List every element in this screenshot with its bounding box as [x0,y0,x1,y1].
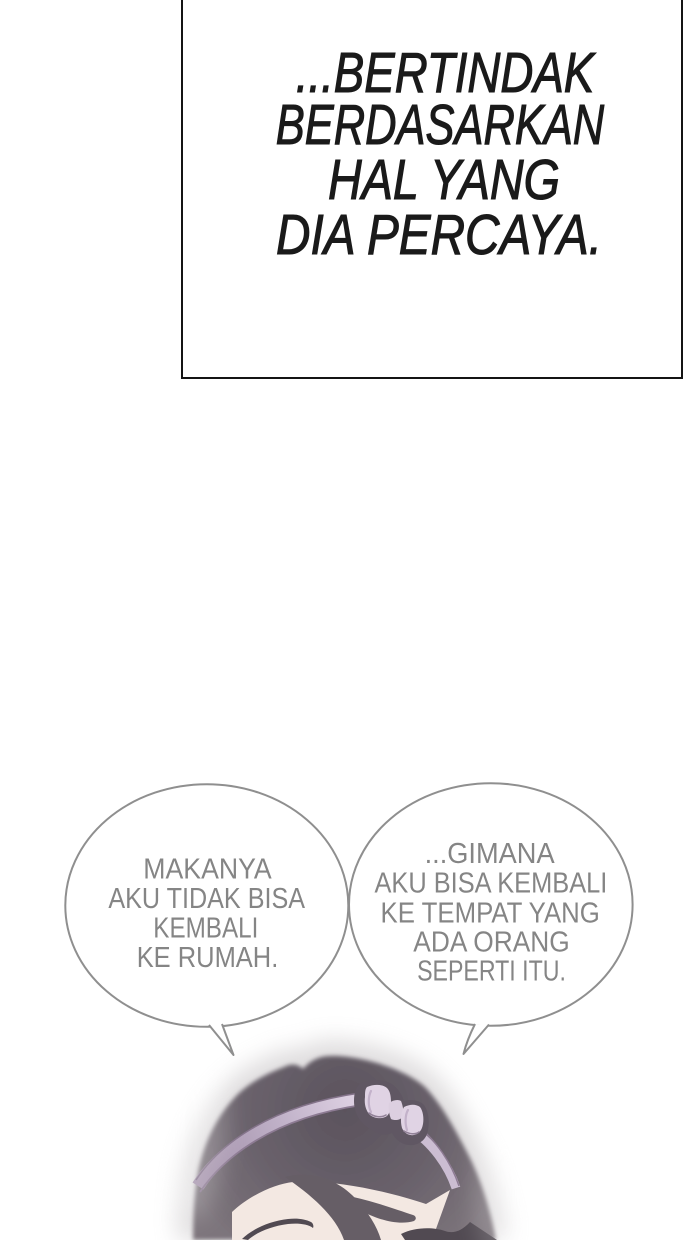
svg-text:BERDASARKAN: BERDASARKAN [276,93,605,156]
svg-text:KE TEMPAT YANG: KE TEMPAT YANG [381,897,600,929]
svg-text:HAL YANG: HAL YANG [328,148,560,211]
svg-text:MAKANYA: MAKANYA [143,854,271,886]
svg-text:KE RUMAH.: KE RUMAH. [137,942,279,974]
svg-text:AKU BISA KEMBALI: AKU BISA KEMBALI [374,868,607,900]
svg-text:AKU TIDAK BISA: AKU TIDAK BISA [108,883,305,915]
svg-text:KEMBALI: KEMBALI [153,913,258,945]
svg-text:DIA PERCAYA.: DIA PERCAYA. [276,203,602,266]
svg-text:...GIMANA: ...GIMANA [425,838,555,870]
svg-text:SEPERTI ITU.: SEPERTI ITU. [417,956,566,988]
svg-text:ADA ORANG: ADA ORANG [413,927,569,959]
